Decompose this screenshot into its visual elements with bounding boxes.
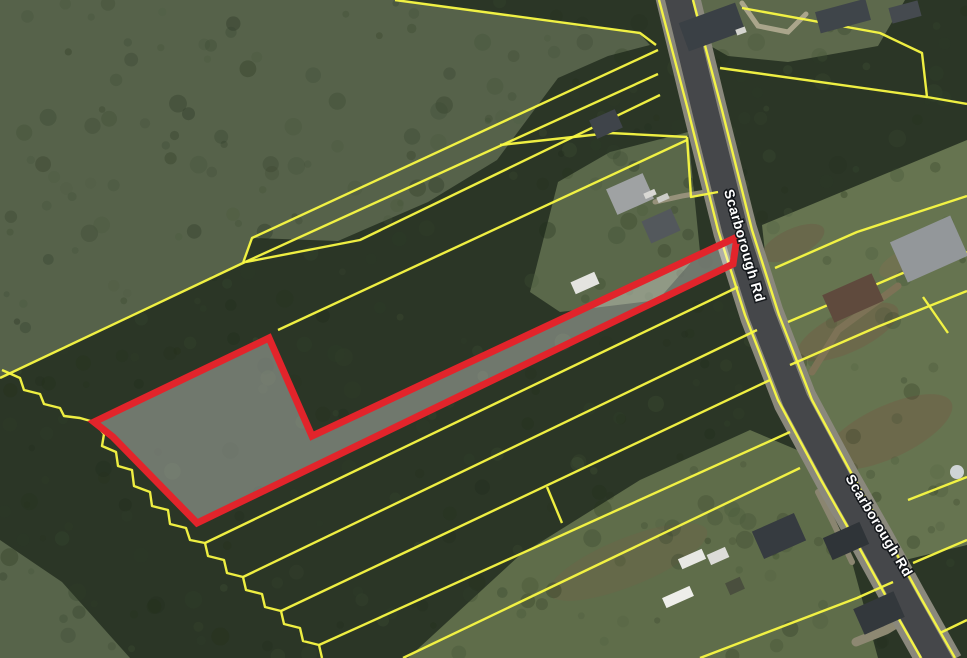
map-viewport: Scarborough RdScarborough Rd [0,0,967,658]
yard-object [950,465,964,479]
aerial-parcel-map[interactable]: Scarborough RdScarborough Rd [0,0,967,658]
